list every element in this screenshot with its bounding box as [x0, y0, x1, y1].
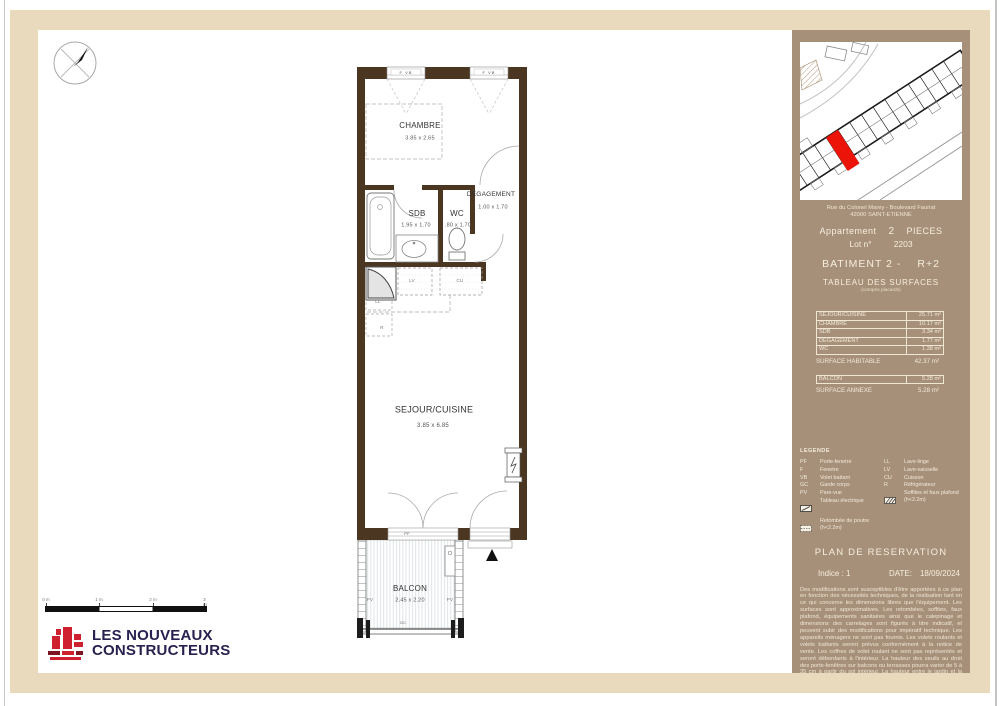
date-label: DATE:	[889, 569, 912, 578]
floor-level: R+2	[917, 258, 940, 270]
plan-type-title: PLAN DE RESERVATION	[792, 547, 970, 558]
lot-number: 2203	[894, 239, 913, 249]
room-label-degagement: DEGAGEMENT	[467, 192, 515, 199]
apartment-type-line: Appartement 2 PIECES	[792, 226, 970, 237]
table-row: WC1.38 m²	[817, 345, 943, 354]
room-dims-chambre: 3.85 x 2.65	[405, 136, 434, 142]
tag-pv-left: PV	[367, 598, 373, 603]
electrical-panel	[505, 448, 522, 482]
floor-plan-drawing	[350, 62, 530, 647]
lot-number-line: Lot n° 2203	[792, 239, 970, 249]
tag-r: R	[380, 326, 383, 331]
room-dims-balcon: 2.45 x 2.20	[395, 598, 424, 604]
scale-label-0: 0 m	[42, 597, 50, 602]
french-door-threshold	[388, 528, 458, 540]
logo-line2: CONSTRUCTEURS	[92, 643, 230, 658]
logo-line1: LES NOUVEAUX	[92, 628, 230, 643]
table-row: BALCON5.28 m²	[817, 376, 943, 384]
legend-title: LEGENDE	[800, 448, 970, 454]
company-logo: LES NOUVEAUX CONSTRUCTEURS	[48, 626, 230, 660]
door-swing-french	[388, 493, 458, 528]
legal-disclaimer: Des modifications sont susceptibles d'êt…	[800, 587, 962, 673]
soffit-hatch-icon	[884, 490, 904, 509]
legend: PFPorte-fenetre FFenetre VBVolet battant…	[800, 459, 970, 538]
table-row: SDB3.34 m²	[817, 328, 943, 337]
site-location-map	[800, 42, 962, 200]
room-dims-sdb: 1.95 x 1.70	[401, 223, 430, 229]
scale-bar-segments	[45, 606, 207, 612]
scale-label-1: 1 m	[95, 597, 103, 602]
room-label-balcon: BALCON	[393, 585, 427, 593]
room-dims-wc: .80 x 1.70	[445, 223, 471, 229]
door-swing-chambre	[480, 146, 519, 185]
tag-gc: GC	[400, 621, 406, 625]
fridge-slot	[366, 314, 392, 336]
entry-arrow-icon	[486, 549, 498, 561]
logo-buildings-icon	[48, 626, 84, 660]
balcony-table: BALCON5.28 m²	[816, 375, 944, 385]
scale-label-2: 2 m	[149, 597, 157, 602]
door-swing-entry	[470, 491, 507, 528]
tag-lv: LV	[409, 279, 415, 284]
room-label-sejour: SEJOUR/CUISINE	[395, 406, 473, 415]
toilet	[449, 228, 465, 250]
electrical-panel-icon	[800, 498, 820, 517]
tag-ll: LL	[375, 300, 380, 305]
entry-door-threshold	[470, 528, 510, 540]
building-floor-line: BATIMENT 2 - R+2	[792, 258, 970, 270]
surface-annexe-row: SURFACE ANNEXE 5.28 m²	[816, 387, 942, 395]
room-dims-sejour: 3.85 x 6.85	[417, 423, 449, 429]
surfaces-table: SEJOUR/CUISINE25.71 m² CHAMBRE10.17 m² S…	[816, 311, 944, 355]
table-row: CHAMBRE10.17 m²	[817, 320, 943, 329]
project-address: Rue du Colonel Marey - Boulevard Fauriat…	[792, 205, 970, 219]
scale-bar: 0 m 1 m 2 m 3 m	[45, 597, 207, 615]
title-block-panel: Rue du Colonel Marey - Boulevard Fauriat…	[792, 30, 970, 673]
room-label-chambre: CHAMBRE	[399, 122, 440, 130]
door-swing-wc	[475, 234, 503, 262]
index-date-line: Indice : 1 DATE: 18/09/2024	[818, 569, 960, 578]
surface-habitable-row: SURFACE HABITABLE 42.37 m²	[816, 358, 942, 366]
date-value: 18/09/2024	[920, 569, 960, 578]
surfaces-table-subtitle: (compris placards)	[792, 288, 970, 293]
table-row: SEJOUR/CUISINE25.71 m²	[817, 312, 943, 320]
wall-left	[357, 67, 365, 540]
compass-north-icon	[52, 40, 98, 86]
window-label-1: F VB	[400, 71, 413, 75]
window-label-2: F VB	[483, 71, 496, 75]
window-edge-left	[4, 0, 5, 706]
room-label-sdb: SDB	[408, 210, 425, 218]
table-row: DEGAGEMENT1.77 m²	[817, 337, 943, 346]
room-label-wc: WC	[450, 210, 464, 218]
tag-cu: CU	[457, 279, 464, 284]
beam-zone-chambre	[366, 104, 442, 159]
bathtub	[367, 193, 394, 259]
surfaces-table-title: TABLEAU DES SURFACES	[792, 278, 970, 287]
indice-value: Indice : 1	[818, 569, 850, 578]
room-dims-degagement: 1.00 x 1.70	[478, 205, 507, 211]
tag-pv-right: PV	[447, 598, 453, 603]
beam-drop-icon	[800, 518, 820, 537]
window-edge-right	[995, 0, 997, 706]
tag-pf: PF	[404, 532, 410, 536]
floor-plan: F VB F VB CHAMBRE 3.85 x 2.65 DEGAGEMENT…	[350, 62, 530, 647]
rooms-count: 2	[888, 226, 894, 237]
dishwasher-slot	[398, 268, 432, 295]
